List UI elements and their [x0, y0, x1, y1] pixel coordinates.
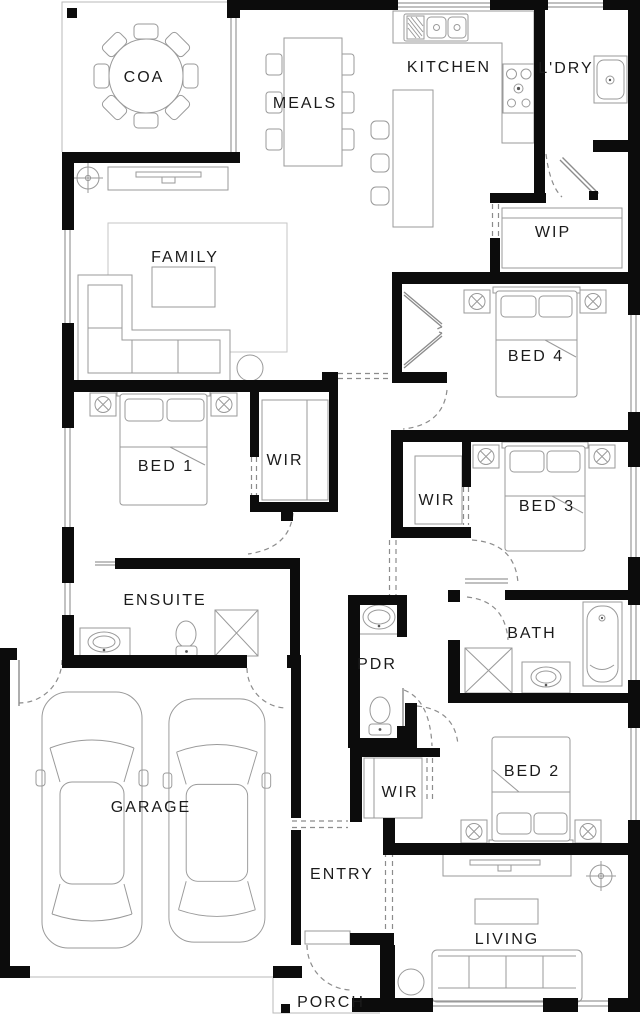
bedside-table [589, 445, 615, 468]
room-label-bed3: BED 3 [519, 498, 575, 515]
living-tv-unit [443, 854, 571, 876]
room-label-wir-bed3: WIR [418, 492, 455, 509]
bedside-table [575, 820, 601, 843]
wir-bed1-shelf [262, 400, 328, 500]
kitchen-island [371, 90, 433, 227]
room-label-bed4: BED 4 [508, 348, 564, 365]
bed4-robe-bifold [404, 333, 442, 368]
ensuite-toilet-icon [176, 621, 197, 657]
living-sofa [432, 950, 582, 1002]
bed1-window [65, 428, 70, 527]
wir-bed3-door [464, 487, 469, 525]
family-side-table [237, 355, 263, 381]
living-side-table [398, 969, 424, 995]
bed-4 [493, 287, 580, 397]
wip-opening [493, 204, 499, 238]
ceiling-fan-icon [73, 163, 103, 193]
bed2-door-swing [417, 706, 458, 745]
room-label-garage: GARAGE [111, 799, 191, 816]
room-label-pdr: PDR [357, 656, 397, 673]
entry-living-opening [386, 852, 393, 931]
garage-side-door-swing [19, 660, 62, 703]
bathtub-icon [583, 602, 622, 686]
ensuite-nib [95, 562, 115, 565]
kitchen-window [398, 3, 490, 7]
coa-stacker-door [231, 18, 236, 152]
bed4-window [631, 315, 636, 412]
bed4-robe-swing [437, 327, 442, 333]
bedside-table [211, 393, 237, 416]
laundry-window [548, 3, 603, 7]
bed4-door-swing [403, 390, 447, 429]
ensuite-shower [215, 610, 258, 656]
floor-plan: COA MEALS KITCHEN L'DRY WIP FAMILY BED 4… [0, 0, 640, 1023]
living-coffee-table [475, 899, 538, 924]
bath-shower [465, 648, 512, 693]
bedside-table [464, 290, 490, 313]
family-coffee-table [152, 267, 215, 307]
bath-window [631, 605, 636, 680]
ceiling-fan-icon [586, 861, 616, 891]
family-window [65, 230, 70, 323]
room-label-wir-bed2: WIR [381, 784, 418, 801]
hall-opening [390, 540, 397, 595]
living-window-2 [578, 1001, 608, 1006]
bed-3 [502, 442, 588, 551]
bed4-robe-bifold [404, 292, 442, 327]
wir-bed2-door [427, 758, 433, 800]
car [163, 699, 271, 942]
room-label-kitchen: KITCHEN [407, 59, 491, 76]
wip-door-leaf [560, 158, 599, 197]
bed-2 [489, 737, 573, 846]
bedside-table [461, 820, 487, 843]
entry-hall-opening [292, 821, 348, 828]
room-label-family: FAMILY [151, 249, 219, 266]
laundry-tub-icon [594, 56, 627, 103]
room-label-meals: MEALS [273, 95, 337, 112]
ensuite-window [65, 583, 70, 615]
bed2-window [631, 728, 636, 820]
room-label-bed1: BED 1 [138, 458, 194, 475]
wir-bed1-door [252, 457, 257, 495]
room-label-bath: BATH [507, 625, 556, 642]
ensuite-vanity [80, 628, 130, 656]
wir-bed3-shelf [415, 456, 462, 524]
bath-vanity [522, 662, 570, 693]
room-label-living: LIVING [475, 931, 539, 948]
front-door-swing [307, 945, 352, 990]
room-label-wip: WIP [535, 224, 571, 241]
family-tv-unit [108, 167, 228, 190]
room-label-entry: ENTRY [310, 866, 374, 883]
bath-door-head [465, 579, 508, 583]
bedside-table [90, 393, 116, 416]
bath-door-swing [467, 597, 508, 640]
room-label-ensuite: ENSUITE [123, 592, 206, 609]
room-label-porch: PORCH [297, 994, 365, 1011]
pdr-vanity [358, 602, 400, 634]
room-label-coa: COA [124, 69, 165, 86]
bedside-table [580, 290, 606, 313]
car [36, 692, 148, 948]
front-door-leaf [305, 931, 350, 944]
bed3-window [631, 467, 636, 557]
pdr-toilet-icon [369, 697, 391, 735]
floor-plan-canvas: COA MEALS KITCHEN L'DRY WIP FAMILY BED 4… [0, 0, 640, 1023]
family-hall-opening [338, 374, 391, 379]
room-label-wir-bed1: WIR [266, 452, 303, 469]
room-label-bed2: BED 2 [504, 763, 560, 780]
bed-1 [117, 390, 210, 505]
bedside-table [473, 445, 499, 468]
room-label-laundry: L'DRY [538, 60, 593, 77]
